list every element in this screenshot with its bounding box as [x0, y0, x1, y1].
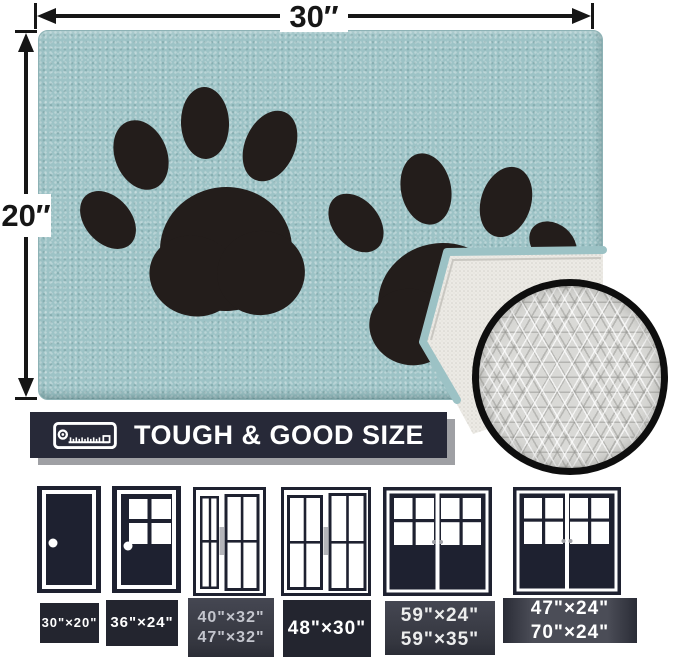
door-illustration-solid [37, 486, 101, 593]
door-knob [124, 542, 133, 551]
arrowhead-right-icon [572, 8, 591, 24]
arrowhead-left-icon [37, 8, 56, 24]
doormat-size-infographic: 30″ 20″ [0, 0, 679, 660]
paw-print-left [69, 86, 314, 328]
height-dimension-label: 20″ [1, 194, 50, 237]
door-knob [432, 540, 436, 544]
dimension-end-tick [15, 397, 37, 400]
door-knob [562, 539, 566, 543]
size-label-59x24-59x35: 59"×24" 59"×35" [385, 601, 495, 655]
size-banner: TOUGH & GOOD SIZE [30, 412, 447, 458]
tape-measure-icon [53, 422, 117, 449]
backing-zoom-inset [472, 279, 668, 475]
door-illustration-sliding-narrow [193, 487, 266, 596]
door-handle [324, 527, 329, 555]
size-label-30x20: 30"×20" [40, 603, 99, 643]
door-knob [49, 539, 58, 548]
arrowhead-up-icon [18, 33, 34, 52]
size-label-36x24: 36"×24" [106, 600, 178, 646]
size-label-48x30: 48"×30" [283, 600, 371, 657]
door-illustration-half-glass [112, 486, 181, 593]
door-illustration-double-french [383, 487, 492, 596]
size-label-40x32-47x32: 40"×32" 47"×32" [188, 598, 274, 657]
arrowhead-down-icon [18, 378, 34, 397]
dimension-end-tick [591, 3, 594, 29]
width-dimension-arrow: 30″ [34, 1, 594, 31]
door-knob [439, 540, 443, 544]
banner-title: TOUGH & GOOD SIZE [134, 422, 424, 449]
door-illustration-sliding-equal [281, 487, 371, 596]
size-label-47x24-70x24: 47"×24" 70"×24" [503, 598, 637, 643]
door-handle [220, 527, 225, 555]
width-dimension-label: 30″ [280, 1, 347, 32]
door-illustration-double-french-wide [513, 487, 621, 595]
door-knob [569, 539, 573, 543]
